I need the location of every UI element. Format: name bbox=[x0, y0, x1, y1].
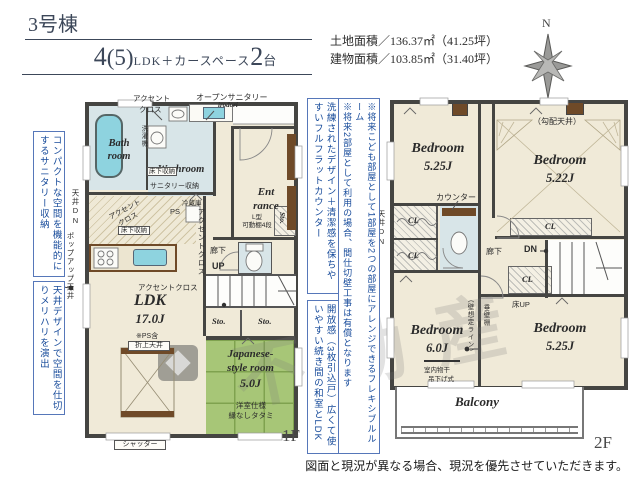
cl-label-3: CL bbox=[545, 221, 556, 231]
storage-label-3: Sto. bbox=[278, 212, 287, 224]
building-area: 建物面積／103.85㎡（31.40坪） bbox=[330, 50, 498, 67]
ldk-label: LDK17.0J bbox=[110, 292, 190, 327]
floor-label-2f: 2F bbox=[594, 433, 612, 453]
hallway-label-2f: 廊下 bbox=[486, 246, 502, 257]
kitchen-floor bbox=[89, 196, 196, 244]
note-flexible-room-col1: ※将来こども部屋として1部屋を2つの部屋にアレンジできるフレキシブルルーム bbox=[353, 102, 377, 450]
cl-label-2: CL bbox=[408, 250, 419, 260]
note-open-washitsu: 開放感（3枚引込戸）広くて使いやすい続き間の和室とLDK bbox=[307, 300, 339, 454]
bedroom1-label: Bedroom5.25J bbox=[398, 140, 478, 176]
slope-ceiling-label: （勾配天井） bbox=[524, 116, 590, 127]
wall bbox=[213, 237, 298, 240]
stairs-2f-area bbox=[548, 240, 624, 296]
hanging-wall-label: 垂壁棚 bbox=[480, 304, 490, 327]
wall bbox=[478, 104, 481, 272]
toilet-counter bbox=[442, 208, 476, 216]
storage-label-2: Sto. bbox=[258, 316, 271, 326]
header-rule-1 bbox=[25, 39, 312, 40]
plan-type: 4(5)LDK＋カースペース2台 bbox=[60, 42, 310, 72]
stairs-1f-area bbox=[206, 274, 296, 308]
note-sanitary-storage: コンパクトな空間を機能的にするサニタリー収納 bbox=[33, 131, 65, 277]
bathroom-label: Bath room bbox=[96, 138, 142, 163]
plan-paren: (5) bbox=[107, 45, 134, 70]
bedroom4-label: Bedroom5.25J bbox=[505, 320, 615, 356]
wall bbox=[545, 240, 548, 298]
watermark-logo-diamond bbox=[165, 350, 190, 375]
wall bbox=[89, 192, 215, 195]
accent-cross-label-3: アクセントクロス bbox=[196, 208, 207, 276]
folded-ceiling-label: 折上天井 bbox=[128, 341, 170, 351]
hallway-label-1f: 廊下 bbox=[210, 245, 226, 256]
note-flat-counter: 洗練されたデザイン＋清潔感を保ちやすいフルフラットカウンター bbox=[307, 98, 339, 294]
wall bbox=[146, 106, 148, 190]
washer-label: 洗濯機 bbox=[138, 125, 148, 148]
accent-cross-label-1: アクセントクロス bbox=[133, 93, 170, 115]
popup-ceiling-label: ポップアップ天井 bbox=[65, 232, 76, 300]
ldk-ps-note: ※PS含 bbox=[136, 331, 158, 341]
underfloor-storage-label-1: 床下収納 bbox=[147, 167, 177, 176]
japanese-room-label: Japanese-style room5.0J bbox=[207, 348, 294, 391]
cl-label-1: CL bbox=[408, 215, 419, 225]
counter-label: カウンター bbox=[436, 192, 476, 203]
ceiling-dn-label-1f: 天井DN bbox=[70, 189, 81, 226]
shoe-cabinet bbox=[287, 134, 296, 180]
plan-unit: 台 bbox=[263, 53, 276, 68]
kitchen-sink bbox=[133, 249, 167, 266]
dn-label: DN bbox=[524, 244, 537, 254]
building-number: 3号棟 bbox=[28, 8, 78, 37]
note-ceiling-design: 天井デザインで空間を仕切りメリハリを演出 bbox=[33, 281, 65, 415]
l-shelf-label: L型可動棚4段 bbox=[234, 214, 280, 230]
wall bbox=[394, 203, 478, 206]
porch-1f bbox=[233, 106, 294, 124]
entrance-label: Entrance bbox=[240, 186, 292, 214]
shutter-label: シャッター bbox=[114, 440, 166, 450]
jp-note-2: 縁なしタタミ bbox=[221, 410, 281, 421]
plan-num: 4 bbox=[94, 42, 107, 71]
indoor-drying-label-2: 吊下げ式 bbox=[428, 373, 454, 383]
storage-label-1: Sto. bbox=[212, 316, 225, 326]
compass-n-label: N bbox=[542, 16, 551, 31]
bedroom2-label: Bedroom5.22J bbox=[505, 152, 615, 188]
balcony-label: Balcony bbox=[455, 394, 499, 410]
cl-label-4: CL bbox=[522, 274, 533, 284]
underfloor-storage-label-2: 床下収納 bbox=[118, 226, 150, 235]
wall bbox=[231, 126, 296, 129]
floorplan-sheet: 3号棟 4(5)LDK＋カースペース2台 土地面積／136.37㎡（41.25坪… bbox=[0, 0, 632, 480]
door-panel bbox=[452, 103, 468, 116]
note-flexible-room-col2: ※将来2部屋として利用の場合、間仕切壁工事は有償となります bbox=[341, 102, 353, 450]
plan-mid: LDK＋カースペース bbox=[134, 54, 251, 68]
door-panel bbox=[566, 102, 584, 115]
sanitary-storage-label: サニタリー収納 bbox=[150, 181, 199, 191]
floor-label-1f: 1F bbox=[282, 426, 300, 446]
land-area: 土地面積／136.37㎡（41.25坪） bbox=[330, 32, 498, 49]
balcony-railing bbox=[401, 426, 578, 434]
fridge-label: 冷蔵庫 bbox=[182, 197, 202, 207]
wall bbox=[394, 238, 438, 240]
wall bbox=[492, 104, 495, 218]
open-sanitary-sub: irodori bbox=[218, 101, 238, 109]
toilet-room-1f bbox=[238, 242, 272, 274]
disclaimer: 図面と現況が異なる場合、現況を優先させていただきます。 bbox=[0, 457, 628, 474]
floor-up-label: 床UP bbox=[512, 299, 530, 310]
plan-num2: 2 bbox=[250, 42, 263, 71]
compass-icon bbox=[525, 34, 571, 98]
note-flexible-room: ※将来こども部屋として1部屋を2つの部屋にアレンジできるフレキシブルルーム ※将… bbox=[338, 98, 380, 454]
ps-label: PS bbox=[170, 207, 180, 216]
header-rule-2 bbox=[22, 74, 312, 75]
wall bbox=[495, 236, 625, 239]
up-label: UP bbox=[212, 261, 225, 271]
wall-line-label: （壁想定ライン） bbox=[464, 296, 474, 356]
